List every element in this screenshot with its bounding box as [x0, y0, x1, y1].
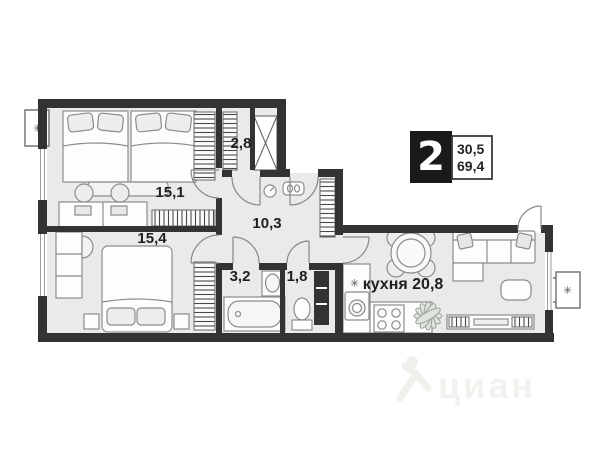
room-label-closet: 2,8 [231, 135, 252, 152]
watermark-text: циан [438, 365, 536, 406]
speaker-hatched [512, 317, 532, 327]
wall-closet-bottom [222, 170, 232, 177]
duct-shaft-icon [254, 116, 277, 170]
total-area: 69,4 [457, 158, 484, 174]
door-balcony [518, 206, 541, 229]
rooms-area-badge: 2 30,5 69,4 [410, 131, 492, 183]
pillow [165, 113, 192, 133]
rooms-count: 2 [417, 134, 445, 180]
window-bedroom-2 [38, 234, 47, 296]
burner [392, 321, 400, 329]
pillow [97, 113, 124, 133]
switch [295, 185, 300, 192]
desk-chair [111, 184, 129, 202]
wall-bath-wc [280, 270, 285, 333]
vent-shaft-right: ✳ [550, 272, 580, 308]
room-label-wc: 1,8 [287, 268, 308, 285]
tv-shelf [474, 319, 508, 325]
dresser-hatched [152, 210, 215, 226]
pillow [67, 112, 94, 132]
sofa-chaise [453, 263, 483, 281]
room-label-kitchen: кухня 20,8 [363, 276, 444, 293]
wall-kitchen-right [545, 310, 553, 333]
wc-shaft [314, 271, 329, 325]
pillow [107, 308, 135, 325]
room-label-bedroom-1: 15,1 [155, 184, 184, 201]
wall-kitchen-top [343, 225, 518, 233]
wall-entry-top [318, 169, 343, 177]
monitor [75, 206, 91, 215]
wc-furniture [292, 298, 312, 330]
wall-hall-left [216, 263, 222, 333]
sofa-pillow [516, 233, 533, 250]
monitor [111, 206, 127, 215]
wall-top [42, 99, 286, 108]
wall-left [38, 99, 47, 149]
vent-symbol: ✳ [563, 284, 572, 297]
window-bedroom-1 [38, 149, 47, 200]
nightstand [174, 314, 189, 329]
wall-hall-kitchen [335, 177, 343, 235]
sofa-pillow [457, 233, 474, 250]
floor-plan-canvas: циан ✳ ✳ [0, 0, 600, 450]
wall-bottom [38, 333, 554, 342]
burner [392, 309, 400, 317]
floor-plan-page: циан ✳ ✳ [0, 0, 600, 450]
wall-hall-left [216, 198, 222, 235]
sink-basin [266, 274, 280, 292]
wardrobe-hatched [194, 262, 215, 330]
coffee-table [501, 280, 531, 300]
burner [378, 309, 386, 317]
speaker-hatched [449, 317, 469, 327]
pillow [135, 113, 162, 133]
shaft-column [314, 271, 329, 325]
wall-hall-left [216, 108, 222, 168]
toilet-bowl [294, 298, 310, 320]
desk-chair [75, 184, 93, 202]
wall-bath-top [259, 263, 287, 270]
wall-closet-bottom [260, 170, 277, 177]
drain [236, 312, 241, 317]
window-kitchen [545, 252, 553, 310]
coat-rack-hatched [320, 179, 335, 237]
wall-entry-top [286, 169, 290, 177]
cian-watermark: циан [400, 356, 536, 406]
wall-rooms-divider [47, 226, 216, 232]
room-label-bedroom-2: 15,4 [137, 230, 167, 247]
wall-shaft-right [277, 99, 286, 177]
wardrobe [56, 232, 82, 298]
room-label-bathroom: 3,2 [230, 268, 251, 285]
washer-drum [353, 304, 362, 313]
pillow [137, 308, 165, 325]
wall-bath-top [309, 263, 335, 270]
wall-left [38, 200, 47, 234]
wall-hall-kitchen [335, 263, 343, 333]
burner [378, 321, 386, 329]
room-label-hallway: 10,3 [252, 215, 281, 232]
sink-symbol: ✳ [350, 277, 359, 290]
switch-panel-icon [283, 182, 304, 195]
cian-logo-icon [400, 356, 428, 398]
nightstand [84, 314, 99, 329]
living-area: 30,5 [457, 141, 484, 157]
toilet-tank [292, 320, 312, 330]
wall-kitchen-right [545, 225, 553, 252]
